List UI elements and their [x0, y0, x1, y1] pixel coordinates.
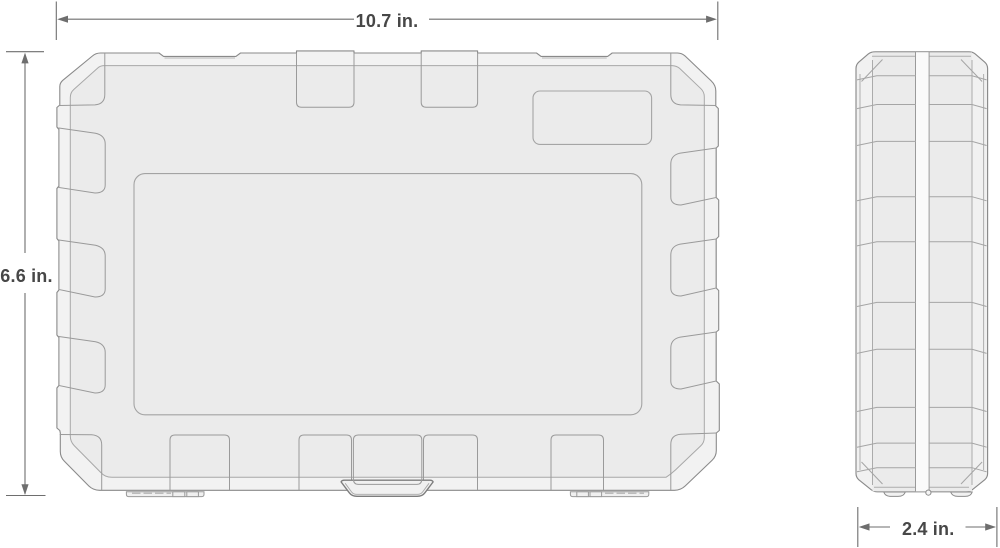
svg-text:2.4 in.: 2.4 in.	[902, 519, 954, 539]
svg-text:10.7 in.: 10.7 in.	[356, 11, 419, 31]
svg-text:6.6 in.: 6.6 in.	[0, 266, 52, 286]
